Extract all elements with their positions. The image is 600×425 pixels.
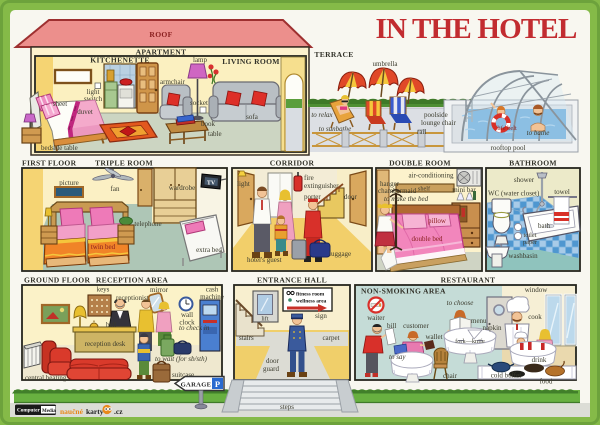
svg-text:fire: fire [304, 174, 314, 182]
svg-text:extinguisher: extinguisher [304, 182, 339, 190]
svg-text:extra bed: extra bed [196, 246, 222, 254]
svg-text:guard: guard [263, 365, 279, 373]
svg-text:sign: sign [315, 312, 327, 320]
svg-text:napkin: napkin [482, 324, 502, 332]
svg-text:to relax: to relax [311, 111, 333, 119]
svg-text:food: food [540, 378, 553, 386]
svg-text:fan: fan [111, 185, 120, 193]
svg-text:telephone: telephone [134, 220, 161, 228]
svg-text:door: door [266, 357, 280, 365]
svg-text:DOUBLE ROOM: DOUBLE ROOM [389, 159, 451, 168]
svg-text:P: P [215, 379, 220, 389]
svg-text:customer: customer [403, 322, 429, 330]
svg-text:window: window [525, 286, 549, 294]
svg-text:GARAGE: GARAGE [181, 382, 212, 389]
svg-text:to bathe: to bathe [527, 129, 550, 137]
svg-text:cold buffet: cold buffet [491, 372, 521, 380]
svg-text:duvet: duvet [77, 108, 93, 116]
svg-text:to make the bed: to make the bed [384, 195, 429, 203]
svg-text:receptionist: receptionist [116, 294, 149, 302]
svg-text:bath: bath [538, 222, 551, 230]
svg-text:waiter: waiter [367, 314, 385, 322]
svg-text:luggage: luggage [329, 250, 351, 258]
svg-text:table: table [208, 130, 222, 138]
svg-text:bedside table: bedside table [41, 144, 78, 152]
svg-text:reception desk: reception desk [85, 340, 126, 348]
svg-text:twin bed: twin bed [91, 243, 116, 251]
svg-text:chair: chair [443, 372, 458, 380]
svg-text:fitness room: fitness room [296, 292, 325, 298]
svg-text:BATHROOM: BATHROOM [509, 159, 557, 168]
svg-text:RESTAURANT: RESTAURANT [441, 276, 496, 285]
svg-text:GROUND FLOOR: GROUND FLOOR [24, 276, 90, 285]
svg-text:RECEPTION AREA: RECEPTION AREA [96, 276, 169, 285]
svg-text:double bed: double bed [412, 235, 443, 243]
svg-text:sofa: sofa [246, 113, 259, 121]
svg-text:pillow: pillow [428, 217, 447, 225]
svg-text:ROOF: ROOF [149, 30, 172, 39]
svg-text:paper: paper [523, 239, 538, 246]
svg-text:naučné: naučné [60, 407, 84, 416]
svg-text:rail: rail [417, 128, 426, 136]
svg-text:towel: towel [554, 188, 570, 196]
svg-text:shelf: shelf [418, 186, 431, 193]
svg-text:lounge chair: lounge chair [421, 119, 456, 127]
svg-text:WC (water closet): WC (water closet) [488, 190, 540, 198]
svg-text:book: book [201, 120, 216, 128]
svg-text:picture: picture [59, 179, 78, 187]
svg-text:light: light [237, 180, 250, 188]
svg-text:bell: bell [106, 321, 117, 329]
svg-text:shower: shower [514, 176, 535, 184]
svg-text:lift: lift [261, 316, 269, 323]
svg-text:wallet: wallet [425, 333, 442, 341]
svg-text:to say: to say [389, 353, 406, 361]
svg-text:IN THE HOTEL: IN THE HOTEL [376, 13, 577, 45]
svg-text:steps: steps [280, 403, 294, 411]
svg-text:bill: bill [387, 322, 396, 330]
svg-text:keys: keys [97, 286, 110, 294]
svg-text:drink: drink [532, 356, 547, 364]
svg-text:TERRACE: TERRACE [314, 50, 353, 59]
svg-text:hotel's guest: hotel's guest [247, 256, 282, 264]
svg-text:to check in: to check in [179, 324, 210, 332]
svg-text:TRIPLE ROOM: TRIPLE ROOM [95, 159, 153, 168]
svg-text:.cz: .cz [114, 407, 123, 416]
svg-text:NON-SMOKING AREA: NON-SMOKING AREA [361, 287, 446, 296]
svg-text:fork—knife: fork—knife [455, 338, 485, 345]
svg-text:Computer: Computer [17, 408, 40, 414]
svg-text:LIVING ROOM: LIVING ROOM [222, 57, 280, 66]
svg-text:Media: Media [42, 409, 56, 414]
svg-text:wardrobe: wardrobe [169, 184, 195, 192]
svg-text:air-conditioning: air-conditioning [409, 172, 454, 180]
svg-text:TV: TV [207, 181, 216, 187]
svg-text:door: door [344, 193, 358, 201]
svg-text:washbasin: washbasin [508, 252, 538, 260]
svg-text:wellness area: wellness area [296, 299, 327, 305]
svg-text:karty: karty [86, 407, 104, 416]
svg-text:to choose: to choose [447, 299, 474, 307]
svg-text:life belt: life belt [497, 125, 517, 132]
svg-text:porter: porter [304, 193, 321, 201]
svg-text:socket: socket [190, 99, 208, 107]
svg-text:lamp: lamp [193, 56, 207, 64]
svg-text:rooftop pool: rooftop pool [491, 144, 526, 152]
svg-text:CORRIDOR: CORRIDOR [270, 159, 315, 168]
svg-text:chambermaid: chambermaid [378, 187, 417, 195]
svg-text:mini bar: mini bar [452, 186, 476, 194]
svg-text:stairs: stairs [239, 334, 254, 342]
svg-text:to wait (for sb/sth): to wait (for sb/sth) [155, 355, 208, 363]
svg-text:sheet: sheet [53, 100, 67, 108]
svg-text:FIRST FLOOR: FIRST FLOOR [22, 159, 77, 168]
svg-text:cook: cook [528, 313, 542, 321]
svg-text:toilet: toilet [524, 232, 537, 239]
svg-text:carpet: carpet [322, 334, 339, 342]
svg-text:umbrella: umbrella [373, 60, 399, 68]
svg-text:ENTRANCE HALL: ENTRANCE HALL [257, 276, 327, 285]
svg-text:poolside: poolside [424, 111, 448, 119]
